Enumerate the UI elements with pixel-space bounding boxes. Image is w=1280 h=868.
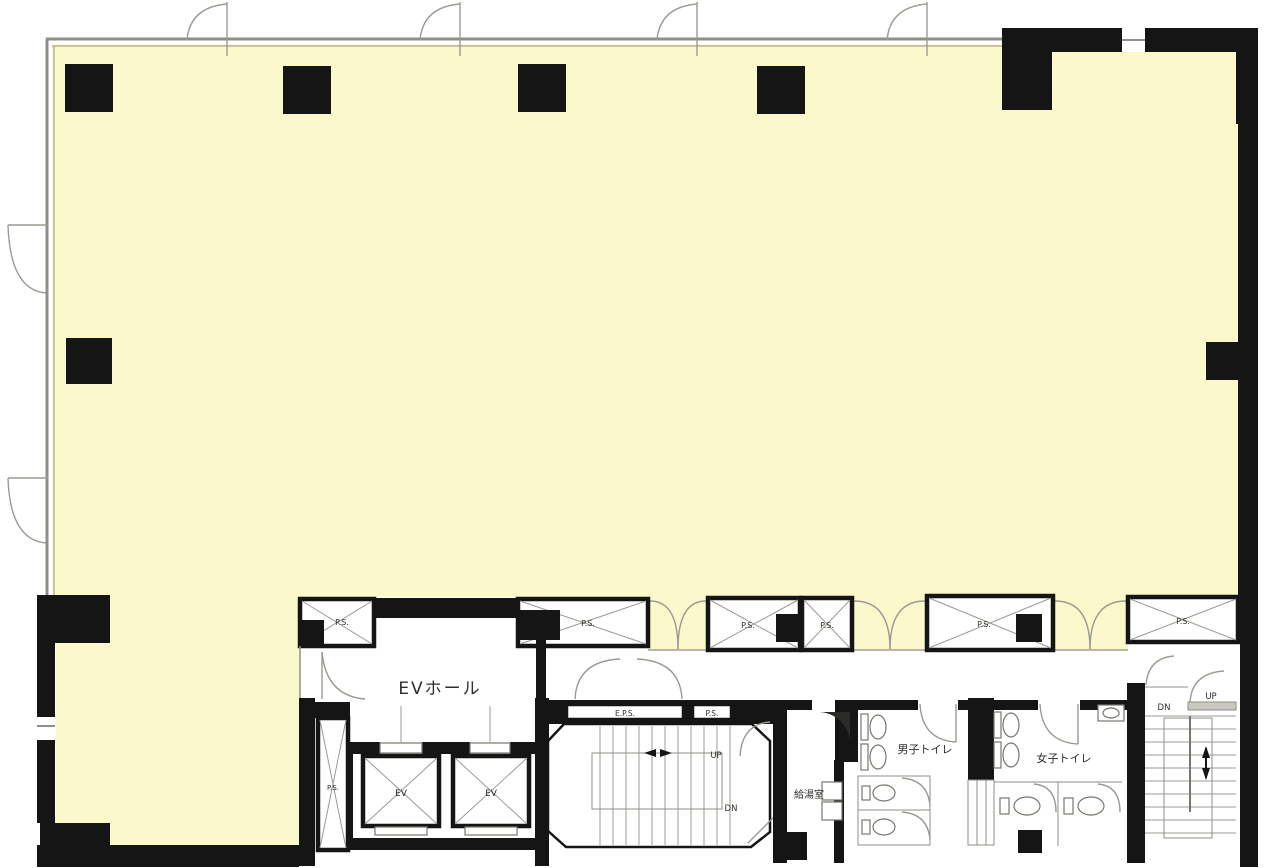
corridor-wall-block <box>835 700 858 762</box>
kitchen-label: 給湯室 <box>794 788 824 801</box>
sink-backsplash <box>861 714 868 740</box>
left-window-arc-1 <box>8 225 46 293</box>
hand-basin <box>1103 708 1119 718</box>
ps-wall-block <box>1016 614 1042 642</box>
top-window-arc-1 <box>187 4 227 40</box>
left-lower-wall-2 <box>37 740 55 823</box>
kitchen-counter <box>822 782 842 800</box>
down-label: DN <box>725 804 738 814</box>
elevator-label: EV <box>395 789 408 799</box>
toilet-bowl <box>873 819 895 835</box>
womens-toilet-label: 女子トイレ <box>1037 751 1092 765</box>
toilet-tank <box>862 820 870 834</box>
ps-label: P.S. <box>977 620 991 629</box>
ev-bank-bottom-wall <box>347 838 547 850</box>
ps-shaft-top-wall <box>302 702 350 718</box>
toilet-bowl <box>873 785 895 801</box>
corridor-wall <box>858 700 918 710</box>
ps-label: P.S. <box>327 784 339 792</box>
stair-landing-bar <box>1188 702 1236 710</box>
sink-backsplash <box>861 744 868 770</box>
kitchen-corner-block <box>775 832 807 860</box>
column-block <box>1018 830 1042 853</box>
toilet-tank <box>862 786 870 800</box>
ps-label: P.S. <box>335 618 349 627</box>
floor-plan-drawing: P.S. P.S. P.S. P.S. P.S. P.S. <box>0 0 1280 868</box>
sink-backsplash <box>994 712 1001 738</box>
ps-wall-block <box>300 620 324 646</box>
down-label: DN <box>1158 703 1171 713</box>
ev-bank-wall <box>347 742 380 754</box>
ps-label: P.S. <box>1176 617 1190 626</box>
column <box>65 64 113 112</box>
top-window-arc-4 <box>887 4 927 40</box>
core-left-wall <box>299 698 315 866</box>
ev-hall-top-wall <box>374 598 518 618</box>
elevator-sill <box>465 827 517 835</box>
column <box>66 338 112 384</box>
toilet-tank <box>1000 798 1009 814</box>
office-main-area <box>52 44 1240 598</box>
top-window-arc-3 <box>657 4 697 40</box>
core-area: P.S. P.S. P.S. P.S. P.S. P.S. <box>299 596 1240 867</box>
stair-left-wall <box>1127 683 1145 863</box>
elevator-label: EV <box>485 789 498 799</box>
ev-door-opening <box>380 743 422 753</box>
column-right-wall <box>1206 342 1240 380</box>
ps-label: P.S. <box>820 621 834 630</box>
column <box>283 66 331 114</box>
ev-hall-label: EVホール <box>398 679 481 699</box>
ev-bank-wall <box>422 742 470 754</box>
right-wall <box>1238 28 1258 866</box>
sink-basin <box>870 745 886 769</box>
up-label: UP <box>710 751 721 761</box>
top-window-arc-2 <box>420 4 460 40</box>
sink-backsplash <box>994 742 1001 768</box>
up-label: UP <box>1205 692 1216 702</box>
toilet-tank <box>1064 798 1073 814</box>
sink-basin <box>870 715 886 739</box>
ev-door-opening <box>470 743 510 753</box>
sink-basin <box>1003 713 1019 737</box>
ps-shaft-right-wall <box>348 754 353 850</box>
toilet-bowl <box>1078 797 1104 815</box>
eps-label: E.P.S. <box>615 709 635 718</box>
left-window-arc-2 <box>8 478 46 543</box>
toilet-bowl <box>1014 797 1040 815</box>
elevator-sill <box>375 827 427 835</box>
stair-room <box>548 724 770 847</box>
sink-basin <box>1003 743 1019 767</box>
kitchen-sink <box>822 802 842 820</box>
ps-label: P.S. <box>741 621 755 630</box>
column <box>757 66 805 114</box>
floor-plan: P.S. P.S. P.S. P.S. P.S. P.S. <box>0 0 1280 868</box>
ps-label: P.S. <box>706 709 719 718</box>
left-lower-wall <box>37 643 55 717</box>
ps-label: P.S. <box>581 619 595 628</box>
left-lower-wall-block <box>37 595 110 643</box>
divider-wall <box>968 698 994 780</box>
mens-toilet-label: 男子トイレ <box>898 743 953 756</box>
column <box>518 64 566 112</box>
ps-wall-block <box>776 614 800 642</box>
